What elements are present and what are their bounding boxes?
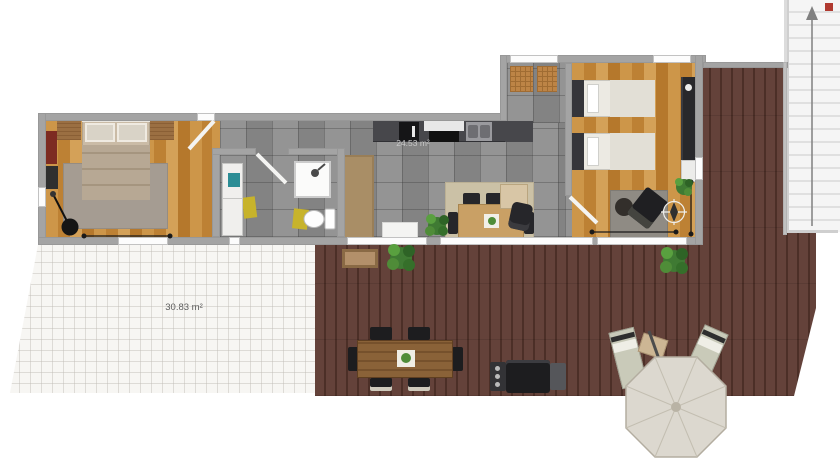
wall-left-exterior bbox=[38, 113, 46, 245]
bath-mat-2 bbox=[292, 208, 309, 229]
wall-right-exterior bbox=[695, 55, 703, 245]
shower-stall bbox=[294, 161, 331, 198]
wall-bathroom-top-left bbox=[212, 148, 256, 155]
wall-deck-arm-top bbox=[703, 62, 788, 68]
single-bed-1 bbox=[572, 80, 655, 117]
table-centerpiece bbox=[484, 214, 499, 228]
pillow bbox=[117, 123, 147, 142]
window-bottom-bathroom bbox=[229, 237, 240, 245]
stairs-upper-border bbox=[784, 0, 787, 62]
window-top-bedroom1 bbox=[197, 113, 215, 121]
tv-panel bbox=[46, 166, 58, 189]
sink-basin bbox=[480, 125, 490, 138]
stairs-marker bbox=[825, 3, 833, 11]
bedroom2-door-gap-floor bbox=[565, 196, 572, 237]
wall-stairs-border bbox=[783, 62, 787, 235]
floor-plan: 30.83 m² 24.53 m² bbox=[0, 0, 840, 460]
red-cabinet bbox=[46, 131, 57, 164]
bed-headboard bbox=[572, 133, 584, 170]
bbq-side-shelf bbox=[550, 363, 566, 390]
nightstand-left bbox=[57, 121, 81, 140]
bbq-body bbox=[506, 360, 550, 393]
pillow bbox=[587, 137, 599, 166]
vanity-divider bbox=[223, 198, 242, 199]
vanity-counter bbox=[222, 163, 243, 236]
planter-box bbox=[342, 249, 378, 268]
bath-mat-1 bbox=[242, 196, 257, 218]
outdoor-chair bbox=[370, 378, 392, 391]
double-bed bbox=[82, 119, 150, 200]
bed-blanket bbox=[82, 145, 150, 200]
wall-bedroom1-right bbox=[212, 150, 220, 237]
window-top-bedroom2 bbox=[653, 55, 691, 63]
glass-door-bedroom2 bbox=[597, 237, 687, 245]
outdoor-chair bbox=[452, 347, 463, 371]
bed-headboard bbox=[572, 80, 584, 117]
window-bottom-bedroom1 bbox=[118, 237, 168, 245]
wall-bathroom-right bbox=[337, 148, 345, 237]
pillow bbox=[85, 123, 115, 142]
bedroom1-door-gap-floor bbox=[212, 121, 220, 151]
bed-blanket bbox=[610, 80, 655, 117]
entry-counter bbox=[505, 121, 533, 142]
white-tile-terrace bbox=[8, 245, 315, 395]
entry-mat-2 bbox=[537, 66, 557, 92]
double-sink bbox=[466, 122, 492, 141]
pillow bbox=[587, 84, 599, 113]
oven-handle bbox=[412, 126, 415, 137]
bbq-grill bbox=[490, 360, 566, 393]
glass-door-living bbox=[440, 237, 593, 245]
bbq-knob bbox=[495, 366, 500, 371]
glass-door-kitchen bbox=[347, 237, 427, 245]
outdoor-chair bbox=[370, 327, 392, 340]
entry-mat-1 bbox=[510, 66, 533, 92]
entry-door-top bbox=[510, 55, 558, 63]
window-right-bedroom2 bbox=[695, 157, 703, 180]
outdoor-chair bbox=[408, 327, 430, 340]
wardrobe-lamp bbox=[685, 84, 692, 91]
staircase bbox=[787, 0, 840, 232]
bbq-knob bbox=[495, 382, 500, 387]
sink-basin bbox=[468, 125, 478, 138]
wall-top-left-wing bbox=[38, 113, 507, 121]
dining-chair bbox=[448, 212, 458, 234]
nightstand-right bbox=[150, 121, 174, 140]
staircase-bottom-edge bbox=[787, 230, 838, 233]
interior-area-label: 24.53 m² bbox=[386, 138, 440, 148]
table-centerpiece bbox=[397, 350, 415, 367]
wall-bedroom2-left bbox=[565, 63, 572, 196]
bbq-knob bbox=[495, 374, 500, 379]
outdoor-chair bbox=[408, 378, 430, 391]
bbq-control-panel bbox=[490, 362, 506, 391]
wall-entry-vertical bbox=[500, 55, 507, 121]
terrace-area-label: 30.83 m² bbox=[148, 302, 220, 313]
runner-rug bbox=[343, 155, 374, 242]
window-left-bedroom1 bbox=[38, 187, 46, 207]
kitchen-doormat bbox=[382, 222, 418, 238]
counter-white-segment bbox=[424, 121, 464, 131]
vanity-sink bbox=[228, 173, 240, 187]
bed-blanket bbox=[610, 133, 655, 170]
outdoor-dining-table bbox=[357, 340, 453, 378]
single-bed-2 bbox=[572, 133, 655, 170]
